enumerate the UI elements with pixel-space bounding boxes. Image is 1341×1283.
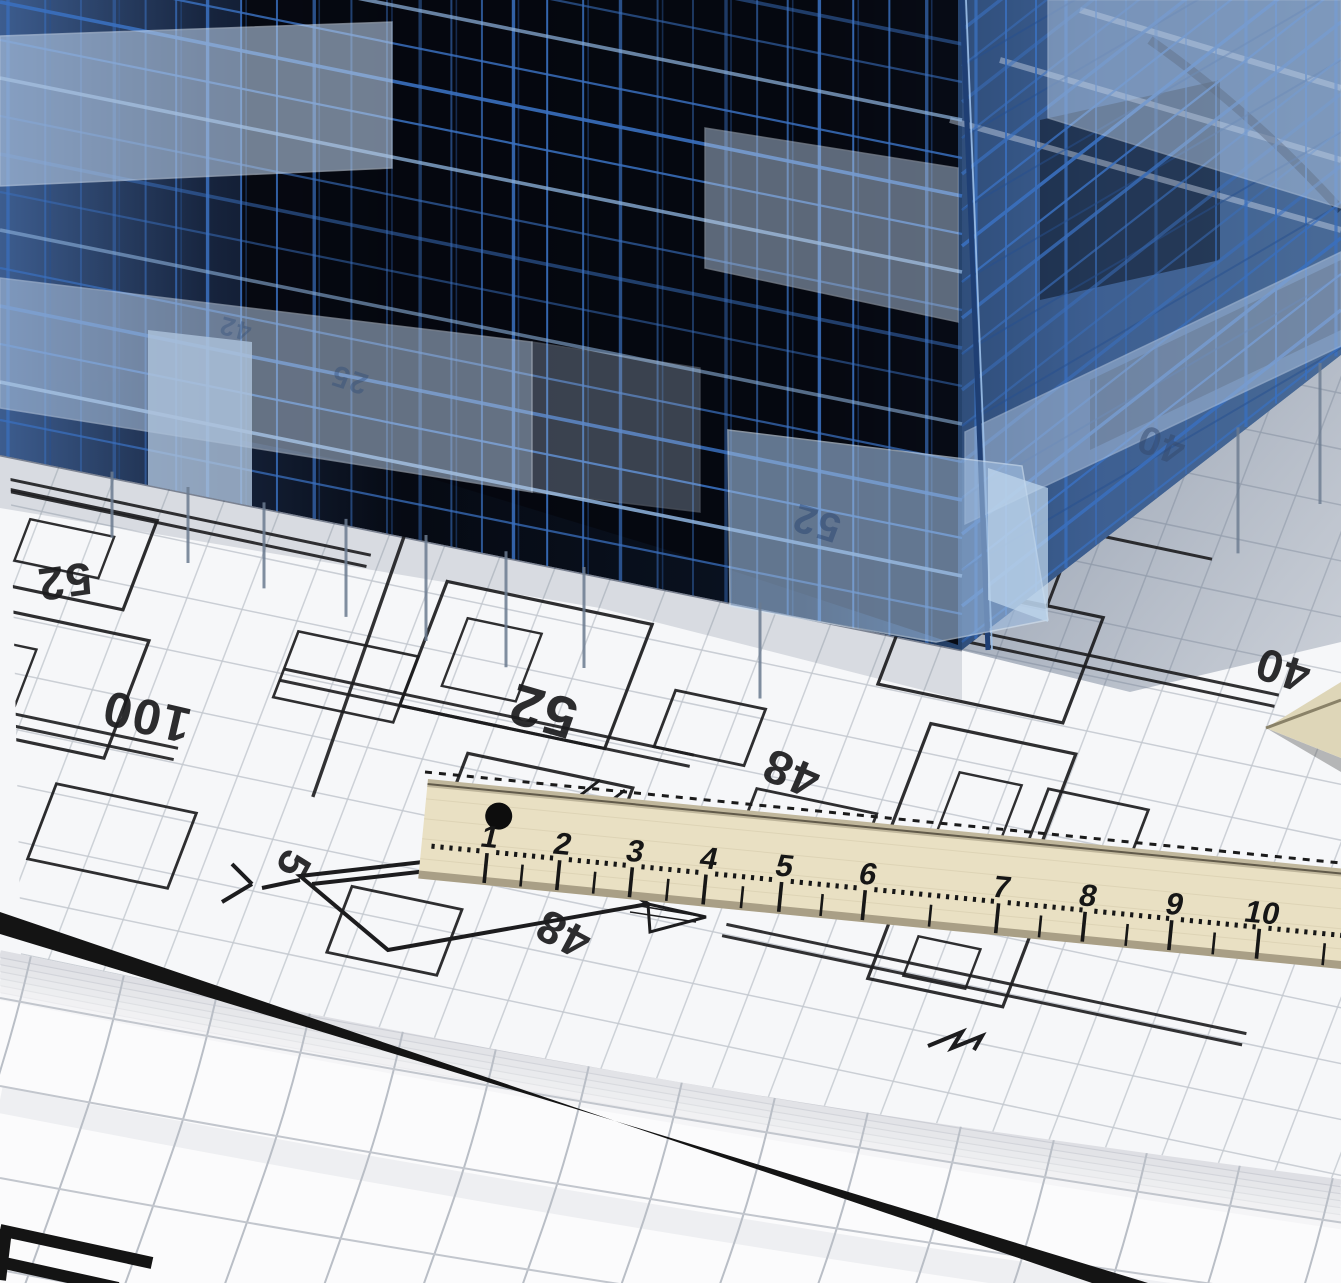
dimension-label: 52 (33, 552, 95, 611)
blueprint-scene: 521005248548404052254212345678910 (0, 0, 1341, 1283)
scene-svg: 521005248548404052254212345678910 (0, 0, 1341, 1283)
